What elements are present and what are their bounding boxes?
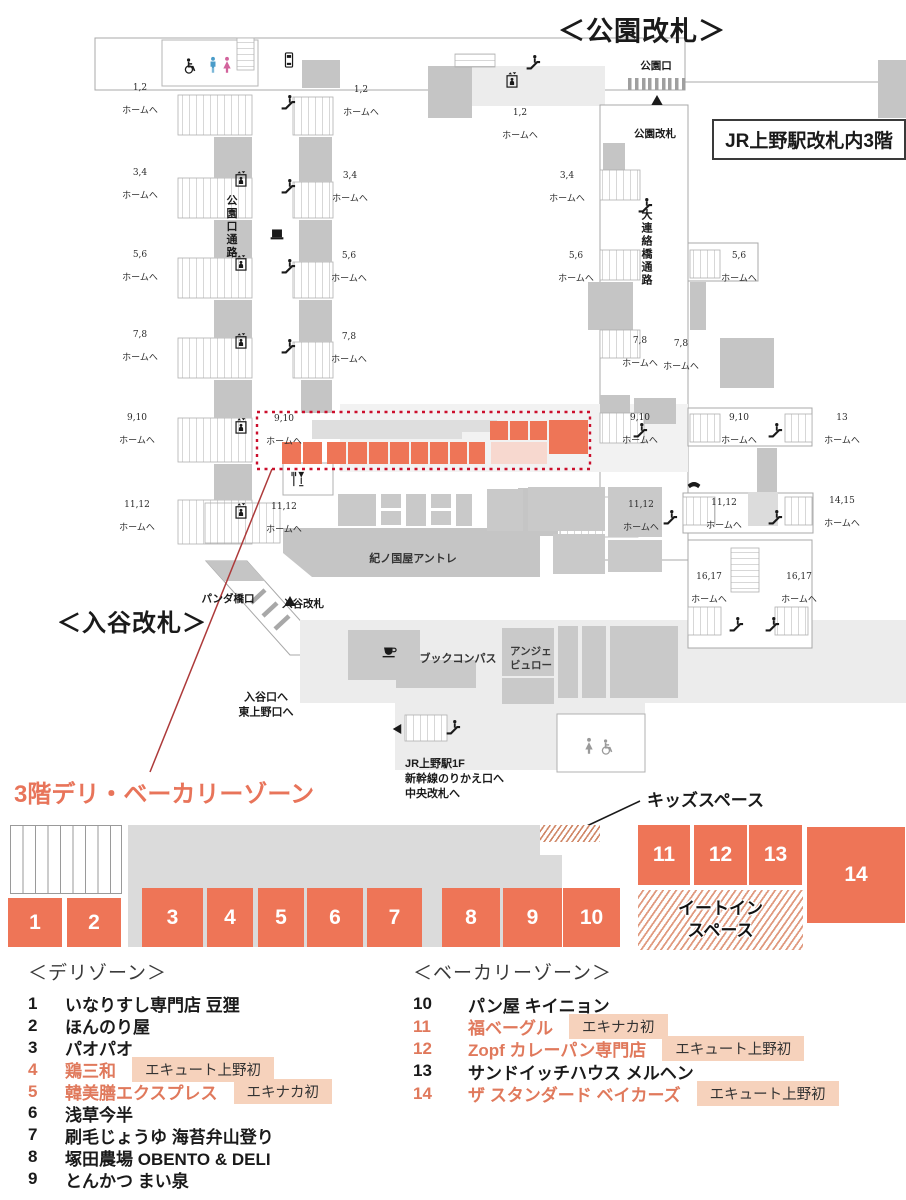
map-label: パンダ橋口 xyxy=(201,578,254,606)
platform-label: 5,6 ホームへ xyxy=(558,239,594,297)
legend-item-name: とんかつ まい泉 xyxy=(65,1167,189,1192)
platform-label: 9,10 ホームへ xyxy=(266,402,302,460)
shop-box-number: 1 xyxy=(29,911,41,935)
park-gate-title: ＜公園改札＞ xyxy=(558,10,726,49)
浅草今半: 6 浅草今半 xyxy=(28,1102,332,1124)
platform-label: 7,8 ホームへ xyxy=(122,318,158,376)
legend-item-number: 7 xyxy=(28,1125,65,1145)
鶏三和: 4 鶏三和 エキュート上野初 xyxy=(28,1059,332,1081)
kids-space-label: キッズスペース xyxy=(647,786,764,811)
map-label: 入谷口へ 東上野口へ xyxy=(239,676,294,721)
platform-label: 14,15 ホームへ xyxy=(824,484,860,542)
map-label: ブックコンパス xyxy=(420,637,497,667)
shop-box-number: 10 xyxy=(580,906,603,930)
platform-label: 1,2 ホームへ xyxy=(502,96,538,154)
platform-label: 11,12 ホームへ xyxy=(266,490,302,548)
escalator-icon xyxy=(525,54,542,71)
wheelchair-icon xyxy=(182,58,199,75)
韓美膳エクスプレス: 5 韓美膳エクスプレス エキナカ初 xyxy=(28,1081,332,1103)
shop-box: 2 xyxy=(67,898,121,947)
shop-box-number: 8 xyxy=(465,906,477,930)
legend-item-number: 12 xyxy=(413,1039,468,1059)
legend-item-number: 3 xyxy=(28,1038,65,1058)
shop-box: 10 xyxy=(563,888,620,947)
shop-box-number: 3 xyxy=(167,906,179,930)
legend-item-number: 11 xyxy=(413,1017,468,1037)
legend-item-number: 2 xyxy=(28,1016,65,1036)
zone-title: 3階デリ・ベーカリーゾーン xyxy=(14,774,314,809)
platform-label: 7,8 ホームへ xyxy=(622,324,658,382)
platform-label: 13 ホームへ xyxy=(824,401,860,459)
legend: ＜デリゾーン＞ 1 いなりすし専門店 豆狸 2 ほんのり屋 xyxy=(0,958,906,1200)
platform-label: 5,6 ホームへ xyxy=(721,239,757,297)
wheelchair-icon xyxy=(599,739,616,756)
platform-label: 3,4 ホームへ xyxy=(122,156,158,214)
legend-item-badge: エキナカ初 xyxy=(569,1014,668,1039)
map-label: 公園口 xyxy=(640,45,672,73)
shop-box: 14 xyxy=(807,827,905,923)
Zopf カレーパン専門店: 12 Zopf カレーパン専門店 エキュート上野初 xyxy=(413,1038,839,1060)
legend-item-number: 14 xyxy=(413,1084,468,1104)
legend-item-badge: エキュート上野初 xyxy=(697,1081,839,1106)
eat-in-space: イートイン スペース xyxy=(638,890,803,950)
map-label: 入谷改札 xyxy=(282,583,324,611)
shop-box: 3 xyxy=(142,888,203,947)
platform-label: 3,4 ホームへ xyxy=(549,159,585,217)
escalator-icon xyxy=(280,94,297,111)
escalator-icon xyxy=(764,616,781,633)
platform-label: 1,2 ホームへ xyxy=(343,73,379,131)
escalator-icon xyxy=(767,422,784,439)
shop-box: 1 xyxy=(8,898,62,947)
shop-box: 9 xyxy=(503,888,562,947)
escalator-icon xyxy=(280,338,297,355)
platform-label: 9,10 ホームへ xyxy=(119,401,155,459)
kiosk-icon xyxy=(269,225,286,242)
escalator-icon xyxy=(662,509,679,526)
schematic-stairs xyxy=(10,825,122,894)
elevator-icon xyxy=(233,171,250,188)
ueno-station-3f-map: ＜公園改札＞ JR上野駅改札内3階 ＜入谷改札＞ 3階デリ・ベーカリーゾーン キ… xyxy=(0,0,906,1200)
福ベーグル: 11 福ベーグル エキナカ初 xyxy=(413,1015,839,1037)
platform-label: 7,8 ホームへ xyxy=(331,320,367,378)
legend-item-name: パン屋 キイニョン xyxy=(468,992,610,1017)
shop-box-number: 13 xyxy=(764,843,787,867)
shop-box-number: 14 xyxy=(844,863,867,887)
shop-box-number: 2 xyxy=(88,911,100,935)
map-label: 大連絡橋通路 xyxy=(638,209,668,287)
legend-item-number: 13 xyxy=(413,1061,468,1081)
cafe-icon xyxy=(381,643,398,660)
platform-label: 5,6 ホームへ xyxy=(331,239,367,297)
toilet-woman-icon xyxy=(219,57,236,74)
bakery-zone-title: ＜ベーカリーゾーン＞ xyxy=(413,958,839,985)
ザ スタンダード ベイカーズ: 14 ザ スタンダード ベイカーズ エキュート上野初 xyxy=(413,1083,839,1105)
サンドイッチハウス メルヘン: 13 サンドイッチハウス メルヘン xyxy=(413,1060,839,1082)
elevator-icon xyxy=(233,503,250,520)
elevator-icon xyxy=(504,72,521,89)
shop-box: 7 xyxy=(367,888,422,947)
legend-item-badge: エキナカ初 xyxy=(234,1079,333,1104)
platform-label: 9,10 ホームへ xyxy=(721,401,757,459)
legend-item-number: 1 xyxy=(28,994,65,1014)
escalator-icon xyxy=(280,178,297,195)
legend-item-name: Zopf カレーパン専門店 xyxy=(468,1036,646,1061)
shop-box-number: 6 xyxy=(329,906,341,930)
legend-item-number: 8 xyxy=(28,1147,65,1167)
platform-label: 7,8 ホームへ xyxy=(663,327,699,385)
deli-zone-title: ＜デリゾーン＞ xyxy=(28,958,332,985)
legend-item-number: 10 xyxy=(413,994,468,1014)
left-arrow-icon xyxy=(389,721,406,738)
shop-box: 5 xyxy=(258,888,304,947)
パオパオ: 3 パオパオ xyxy=(28,1037,332,1059)
ほんのり屋: 2 ほんのり屋 xyxy=(28,1015,332,1037)
platform-label: 11,12 ホームへ xyxy=(119,488,155,546)
map-label: 公園口通路 xyxy=(223,195,253,260)
phone-icon xyxy=(686,479,703,496)
legend-item-name: サンドイッチハウス メルヘン xyxy=(468,1059,694,1084)
とんかつ まい泉: 9 とんかつ まい泉 xyxy=(28,1168,332,1190)
elevator-icon xyxy=(233,333,250,350)
shop-box-number: 12 xyxy=(709,843,732,867)
platform-label: 16,17 ホームへ xyxy=(691,560,727,618)
legend-item-number: 5 xyxy=(28,1082,65,1102)
kids-space-area xyxy=(540,825,600,842)
eat-in-space-label: イートイン スペース xyxy=(678,898,763,942)
shop-box-number: 7 xyxy=(389,906,401,930)
vending-machine-icon xyxy=(281,52,298,69)
legend-item-name: ザ スタンダード ベイカーズ xyxy=(468,1081,681,1106)
platform-label: 11,12 ホームへ xyxy=(623,488,659,546)
elevator-icon xyxy=(233,418,250,435)
shop-box: 4 xyxy=(207,888,253,947)
shop-box: 8 xyxy=(442,888,500,947)
塚田農場 OBENTO & DELI: 8 塚田農場 OBENTO & DELI xyxy=(28,1146,332,1168)
map-label: JR上野駅1F 新幹線のりかえ口へ 中央改札へ xyxy=(405,742,504,801)
いなりすし専門店 豆狸: 1 いなりすし専門店 豆狸 xyxy=(28,993,332,1015)
iriya-gate-title: ＜入谷改札＞ xyxy=(57,603,207,638)
legend-item-number: 6 xyxy=(28,1103,65,1123)
platform-label: 5,6 ホームへ xyxy=(122,238,158,296)
shop-box-number: 9 xyxy=(527,906,539,930)
legend-item-name: 福ベーグル xyxy=(468,1014,553,1039)
deli-zone-list: ＜デリゾーン＞ 1 いなりすし専門店 豆狸 2 ほんのり屋 xyxy=(28,958,332,1190)
パン屋 キイニョン: 10 パン屋 キイニョン xyxy=(413,993,839,1015)
shop-box: 12 xyxy=(694,825,747,885)
floor-label-box: JR上野駅改札内3階 xyxy=(712,119,906,160)
restaurant-icon xyxy=(289,471,306,488)
刷毛じょうゆ 海苔弁山登り: 7 刷毛じょうゆ 海苔弁山登り xyxy=(28,1124,332,1146)
shop-box-number: 11 xyxy=(653,843,675,867)
zone-schematic: 1 2 3 4 5 6 xyxy=(0,820,906,957)
escalator-icon xyxy=(767,509,784,526)
shop-box: 11 xyxy=(638,825,690,885)
shop-box-number: 5 xyxy=(275,906,287,930)
escalator-icon xyxy=(728,616,745,633)
legend-item-number: 9 xyxy=(28,1169,65,1189)
shop-box: 6 xyxy=(307,888,363,947)
escalator-icon xyxy=(280,258,297,275)
bakery-zone-list: ＜ベーカリーゾーン＞ 10 パン屋 キイニョン 11 福ベーグル エキナカ初 xyxy=(413,958,839,1105)
platform-label: 16,17 ホームへ xyxy=(781,560,817,618)
toilet-woman-icon xyxy=(581,738,598,755)
platform-label: 11,12 ホームへ xyxy=(706,486,742,544)
gate-triangle-icon xyxy=(649,92,666,109)
platform-label: 9,10 ホームへ xyxy=(622,401,658,459)
map-label: 公園改札 xyxy=(634,113,676,141)
shop-box: 13 xyxy=(749,825,802,885)
platform-label: 1,2 ホームへ xyxy=(122,71,158,129)
map-label: アンジェ ビュロー xyxy=(510,631,552,674)
legend-item-badge: エキュート上野初 xyxy=(662,1036,804,1061)
legend-item-number: 4 xyxy=(28,1060,65,1080)
platform-label: 3,4 ホームへ xyxy=(332,159,368,217)
escalator-icon xyxy=(445,719,462,736)
shop-box-number: 4 xyxy=(224,906,236,930)
map-label: 紀ノ国屋アントレ xyxy=(369,537,457,567)
